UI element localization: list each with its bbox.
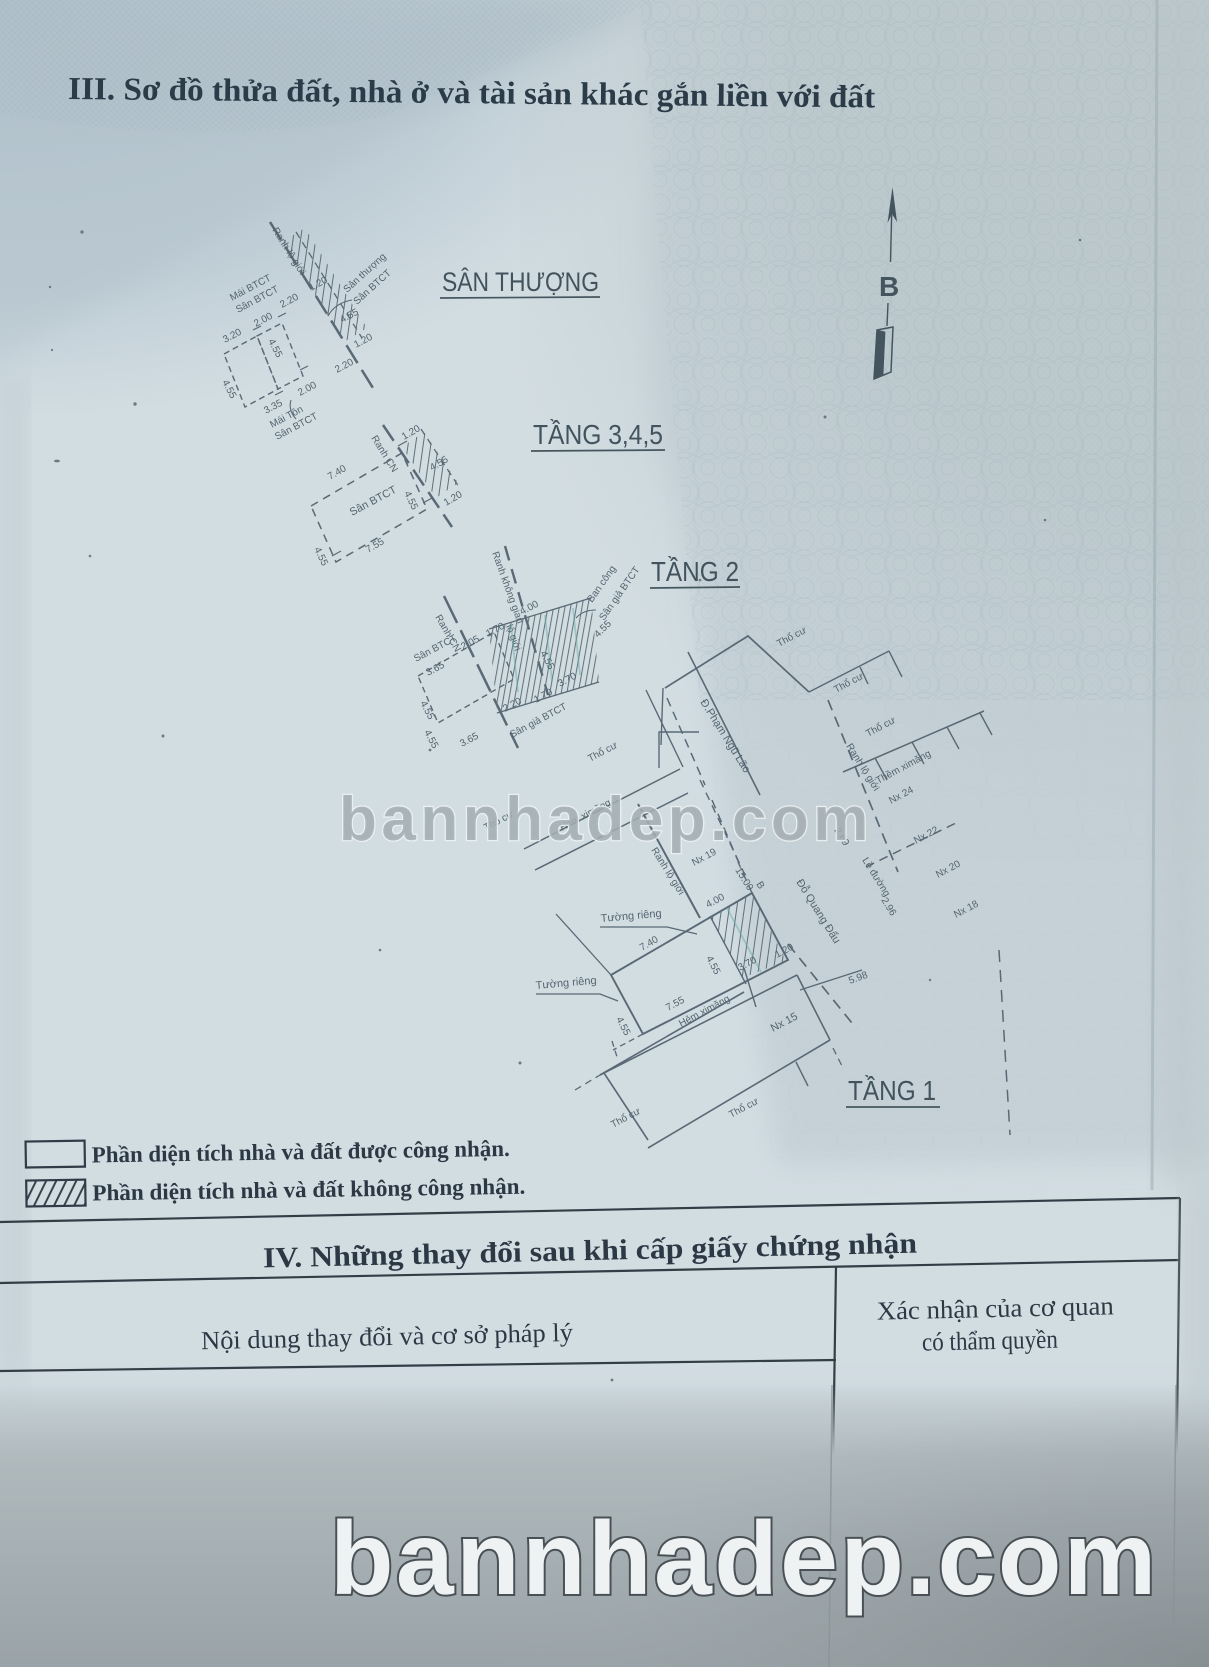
svg-text:TẦNG 3,4,5: TẦNG 3,4,5 [533, 419, 663, 450]
svg-text:bannhadep.com: bannhadep.com [339, 785, 873, 854]
svg-text:Xác nhận của cơ quan: Xác nhận của cơ quan [876, 1291, 1114, 1325]
svg-text:có thẩm quyền: có thẩm quyền [922, 1325, 1059, 1357]
svg-text:TẦNG 2: TẦNG 2 [651, 556, 739, 587]
svg-text:SÂN THƯỢNG: SÂN THƯỢNG [442, 266, 599, 297]
svg-text:bannhadep.com: bannhadep.com [330, 1501, 1159, 1617]
svg-text:TẦNG 1: TẦNG 1 [848, 1075, 936, 1106]
svg-text:B: B [879, 271, 899, 302]
